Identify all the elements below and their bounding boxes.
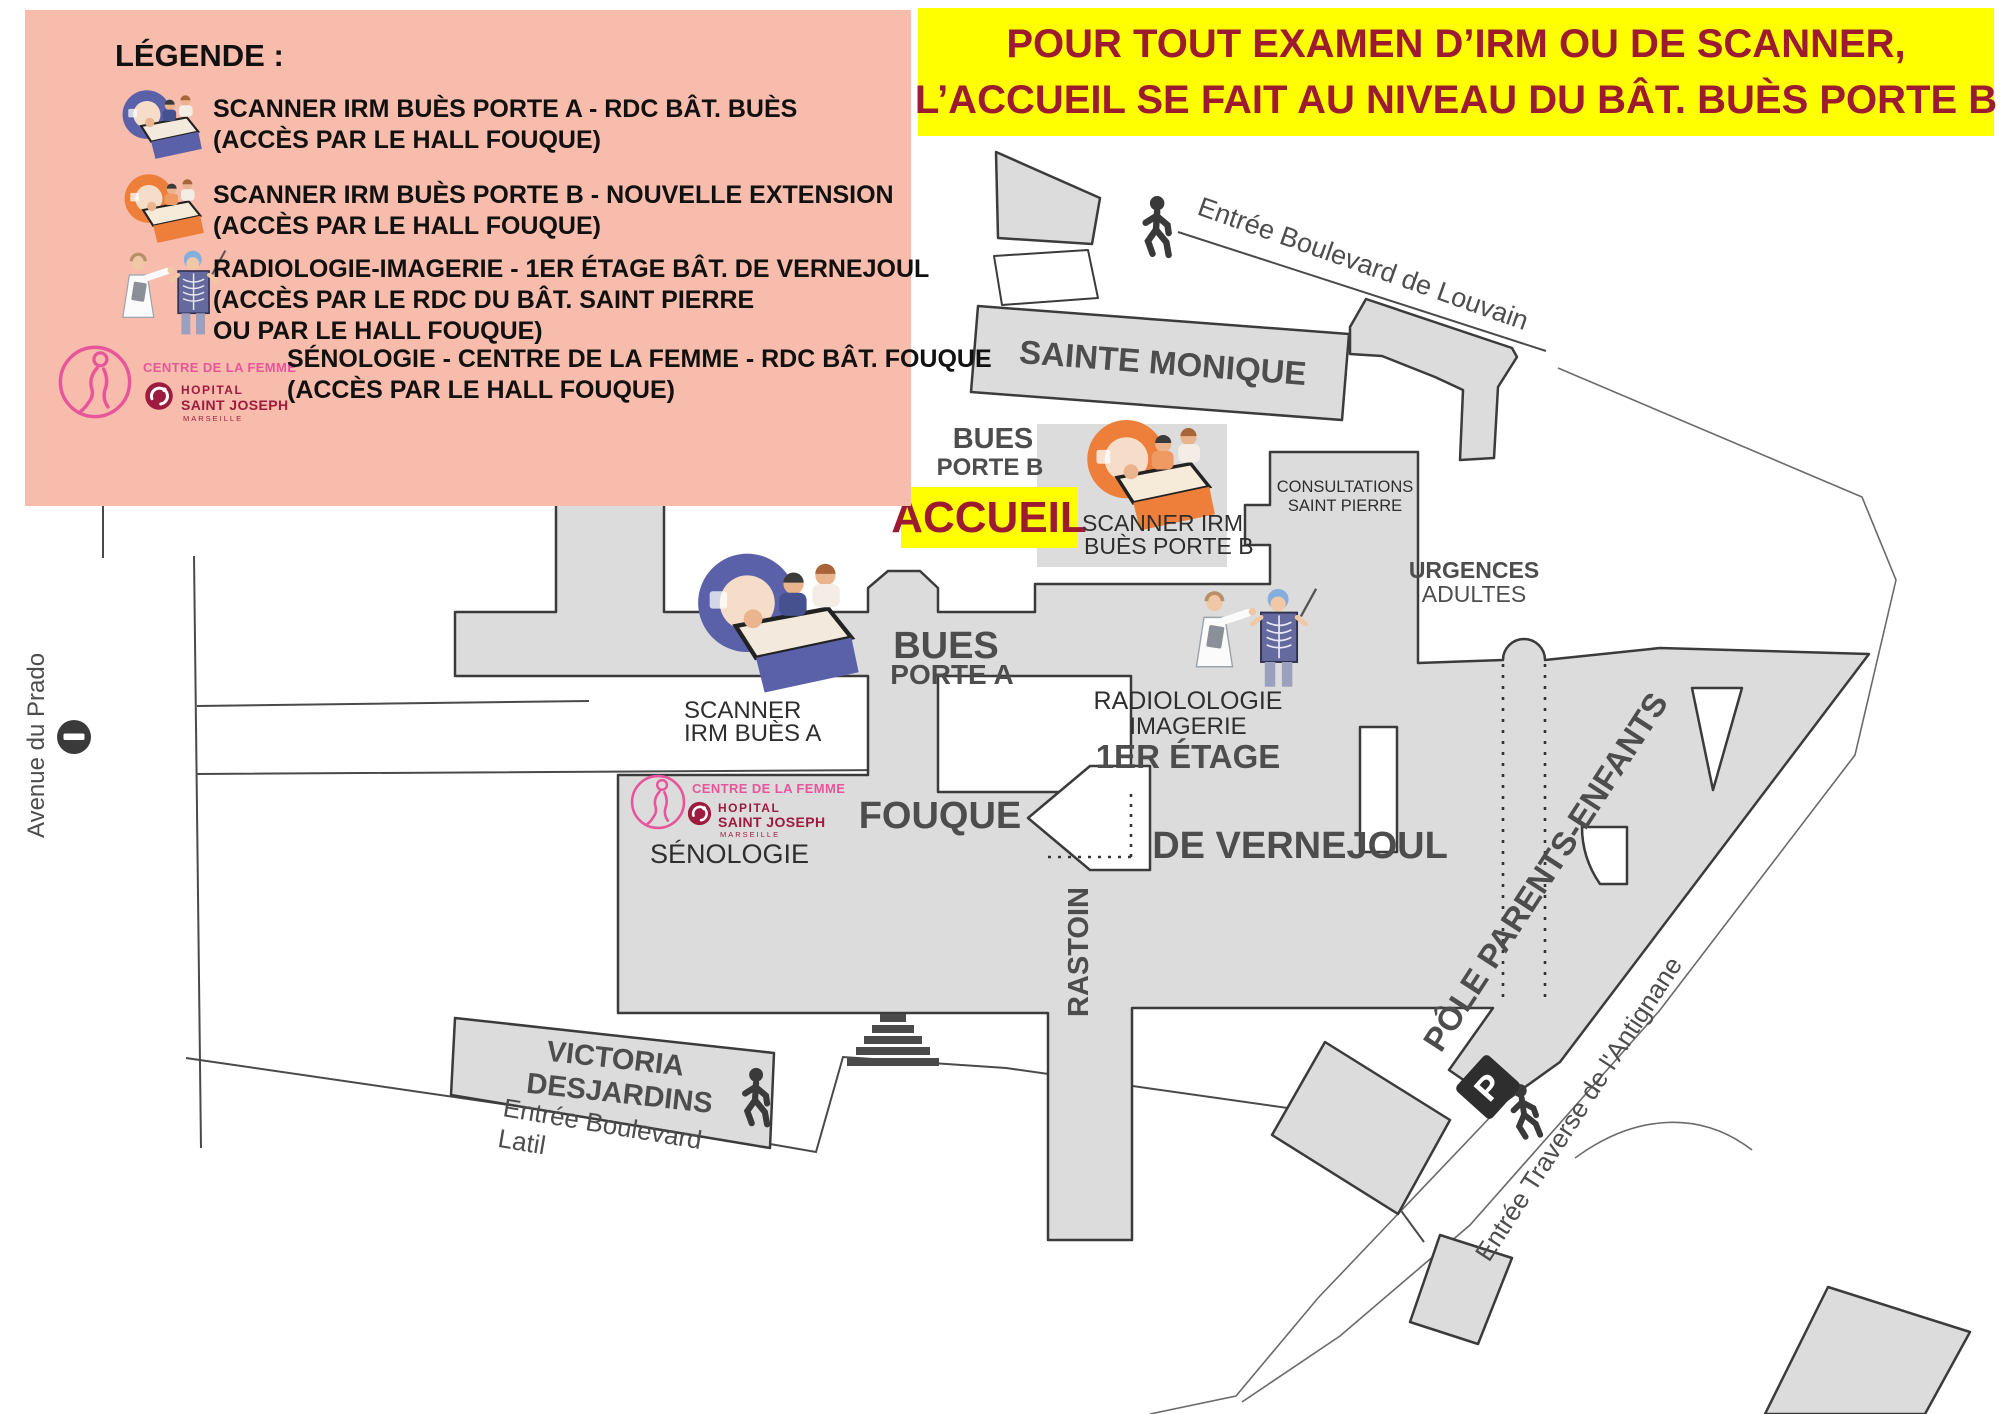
road-left-upper <box>197 701 589 706</box>
building-louvain-quad <box>996 152 1100 244</box>
road-traverse-curve <box>1575 1122 1752 1158</box>
no-entry-icon <box>57 720 91 754</box>
street-prado: Avenue du Prado <box>23 653 50 838</box>
svg-text:CENTRE DE LA FEMME: CENTRE DE LA FEMME <box>143 360 296 375</box>
legend-scanner-a-icon <box>121 86 207 166</box>
marseille-label: MARSEILLE <box>720 830 780 839</box>
label-bues-a-2: PORTE A <box>890 659 1013 690</box>
centre-femme-label: CENTRE DE LA FEMME <box>692 781 845 796</box>
label-consultations-1: CONSULTATIONS <box>1277 478 1414 496</box>
label-bues-b-1: BUES <box>953 423 1034 455</box>
label-radiologie-1: RADIOLOLOGIE <box>1094 687 1283 715</box>
svg-text:Latil: Latil <box>496 1123 548 1160</box>
walker-louvain <box>1146 196 1169 255</box>
legend-scanner-b-icon <box>123 170 209 250</box>
banner-line-2: L’ACCUEIL SE FAIT AU NIVEAU DU BÂT. BUÈS… <box>915 72 1997 128</box>
label-senologie: SÉNOLOGIE <box>650 839 809 869</box>
building-detached-slab-3 <box>1765 1287 1970 1414</box>
legend-panel: LÉGENDE : SCANNER IRM BUÈS PORTE A - RDC… <box>25 10 911 506</box>
hopital-saint-joseph-icon <box>688 802 711 825</box>
svg-text:MARSEILLE: MARSEILLE <box>183 414 243 423</box>
legend-item-1: SCANNER IRM BUÈS PORTE A - RDC BÂT. BUÈS… <box>213 94 797 156</box>
label-de-vernejoul: DE VERNEJOUL <box>1152 825 1448 867</box>
accueil-highlight: ACCUEIL <box>891 487 1087 548</box>
label-radiologie-3: 1ER ÉTAGE <box>1096 738 1281 775</box>
accueil-label: ACCUEIL <box>891 493 1087 542</box>
stairs-icon <box>847 1014 939 1066</box>
centre-femme-icon <box>60 347 129 416</box>
label-rastoin: RASTOIN <box>1063 887 1095 1017</box>
label-radiologie-2: IMAGERIE <box>1129 713 1246 740</box>
legend-item-2: SCANNER IRM BUÈS PORTE B - NOUVELLE EXTE… <box>213 180 894 242</box>
label-scanner-b-2: BUÈS PORTE B <box>1084 533 1254 559</box>
hospital-access-map-page: CENTRE DE LA FEMME HOPITAL SAINT JOSEPH … <box>0 0 2000 1414</box>
legend-centre-femme-logo: CENTRE DE LA FEMME HOPITAL SAINT JOSEPH … <box>51 338 301 428</box>
legend-title: LÉGENDE : <box>115 38 284 74</box>
label-bues-b-2: PORTE B <box>937 454 1044 481</box>
road-latil-boundary <box>186 1057 1424 1242</box>
legend-item-4: SÉNOLOGIE - CENTRE DE LA FEMME - RDC BÂT… <box>287 344 992 406</box>
label-fouque: FOUQUE <box>859 795 1022 837</box>
legend-item-3: RADIOLOGIE-IMAGERIE - 1ER ÉTAGE BÂT. DE … <box>213 254 929 347</box>
hopital-label: HOPITAL <box>718 801 780 815</box>
svg-text:SAINT JOSEPH: SAINT JOSEPH <box>181 397 289 413</box>
label-urgences-1: URGENCES <box>1409 557 1539 583</box>
label-scanner-a-2: IRM BUÈS A <box>684 720 821 747</box>
label-urgences-2: ADULTES <box>1422 581 1526 607</box>
label-consultations-2: SAINT PIERRE <box>1288 497 1402 515</box>
warning-banner: POUR TOUT EXAMEN D’IRM OU DE SCANNER, L’… <box>918 8 1994 136</box>
building-louvain-outline <box>994 250 1098 305</box>
svg-text:HOPITAL: HOPITAL <box>181 383 243 397</box>
hopital-saint-joseph-icon <box>145 382 173 410</box>
banner-line-1: POUR TOUT EXAMEN D’IRM OU DE SCANNER, <box>1006 16 1905 72</box>
saint-joseph-label: SAINT JOSEPH <box>718 814 826 830</box>
